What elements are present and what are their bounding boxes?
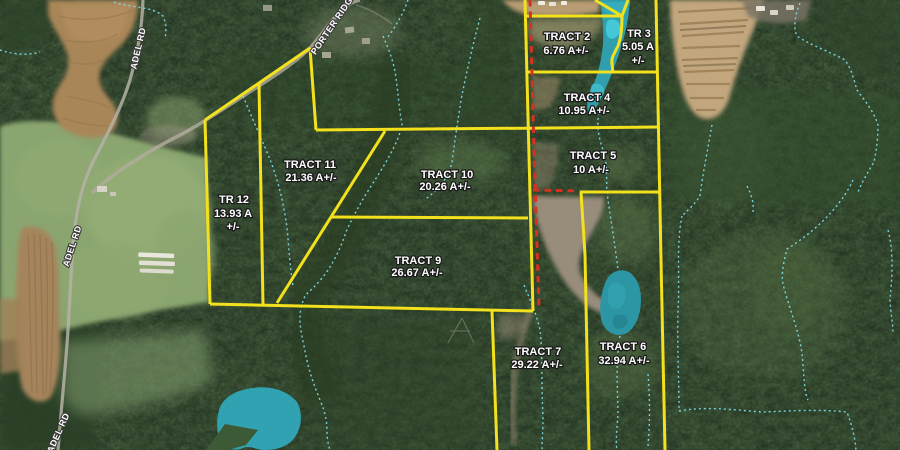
svg-text:10.95 A+/-: 10.95 A+/- xyxy=(558,105,610,117)
svg-text:TR 3: TR 3 xyxy=(627,28,651,40)
svg-text:TRACT 5: TRACT 5 xyxy=(570,150,616,162)
svg-text:TRACT 10: TRACT 10 xyxy=(421,169,474,181)
svg-text:13.93 A: 13.93 A xyxy=(214,208,252,220)
svg-text:TRACT 4: TRACT 4 xyxy=(564,92,611,104)
svg-text:TR 12: TR 12 xyxy=(219,194,249,206)
svg-text:TRACT 11: TRACT 11 xyxy=(284,159,336,171)
svg-text:5.05 A: 5.05 A xyxy=(622,41,654,53)
svg-text:TRACT 6: TRACT 6 xyxy=(600,341,646,353)
svg-text:+/-: +/- xyxy=(631,55,644,67)
svg-text:20.26 A+/-: 20.26 A+/- xyxy=(419,181,471,193)
svg-text:6.76 A+/-: 6.76 A+/- xyxy=(543,45,588,57)
svg-text:21.36 A+/-: 21.36 A+/- xyxy=(285,172,337,184)
svg-text:32.94 A+/-: 32.94 A+/- xyxy=(598,355,650,367)
svg-text:TRACT 9: TRACT 9 xyxy=(395,255,441,267)
svg-text:+/-: +/- xyxy=(226,221,239,233)
svg-text:TRACT 7: TRACT 7 xyxy=(515,346,561,358)
svg-text:29.22 A+/-: 29.22 A+/- xyxy=(511,359,563,371)
svg-text:TRACT 2: TRACT 2 xyxy=(544,31,590,43)
svg-text:26.67 A+/-: 26.67 A+/- xyxy=(391,267,443,279)
svg-text:10 A+/-: 10 A+/- xyxy=(573,164,609,176)
